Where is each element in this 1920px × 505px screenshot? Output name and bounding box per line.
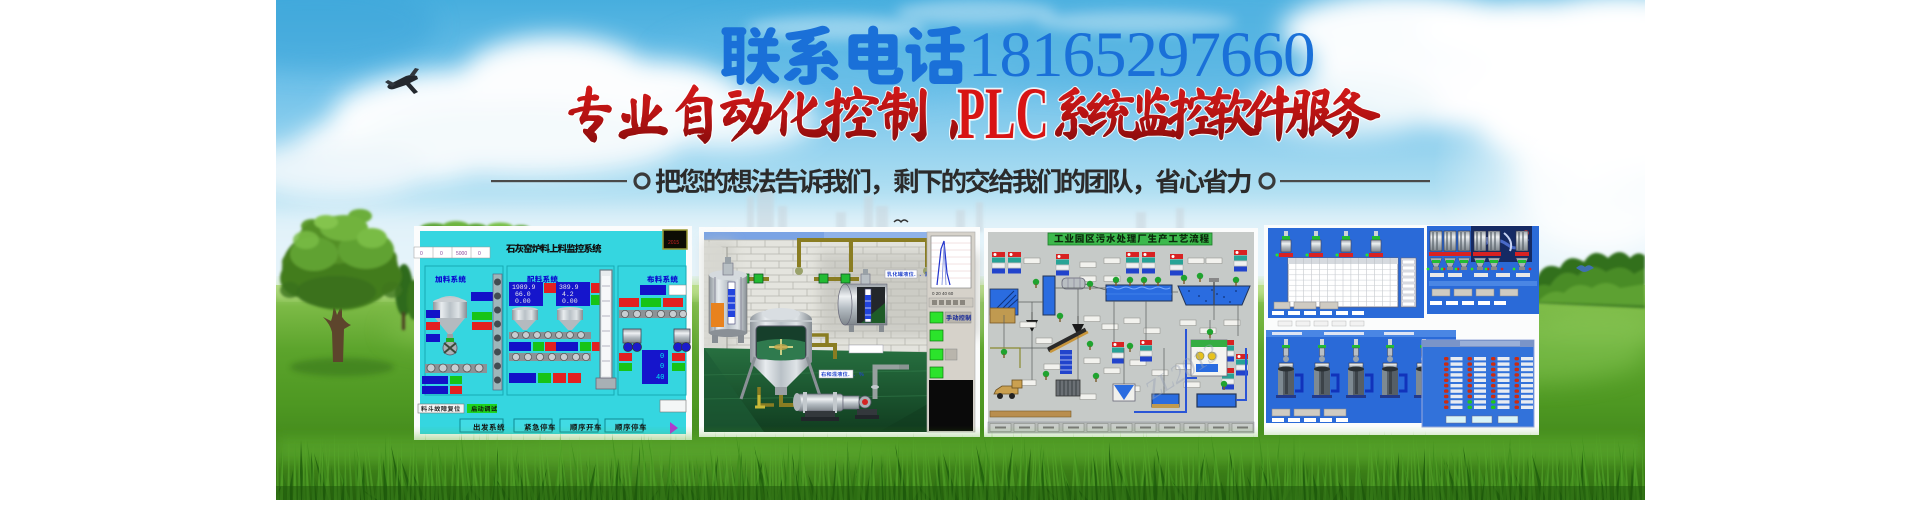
svg-text:0.00: 0.00: [562, 298, 578, 305]
svg-text:0: 0: [420, 251, 423, 257]
svg-text:66.0: 66.0: [515, 291, 531, 298]
svg-text:1989.9: 1989.9: [512, 284, 536, 291]
svg-text:0: 0: [478, 251, 481, 257]
svg-text:40: 40: [656, 374, 664, 382]
svg-text:18165297660: 18165297660: [968, 19, 1315, 91]
svg-text:0: 0: [660, 353, 664, 361]
svg-text:0: 0: [440, 251, 443, 257]
svg-text:4.2: 4.2: [562, 291, 574, 298]
svg-text:0 20 40 60: 0 20 40 60: [932, 291, 954, 296]
svg-text:389.9: 389.9: [559, 284, 579, 291]
svg-text:0: 0: [660, 363, 664, 371]
svg-text:0.00: 0.00: [515, 298, 531, 305]
svg-text:5000: 5000: [456, 251, 467, 257]
svg-text:2015: 2015: [668, 240, 679, 246]
